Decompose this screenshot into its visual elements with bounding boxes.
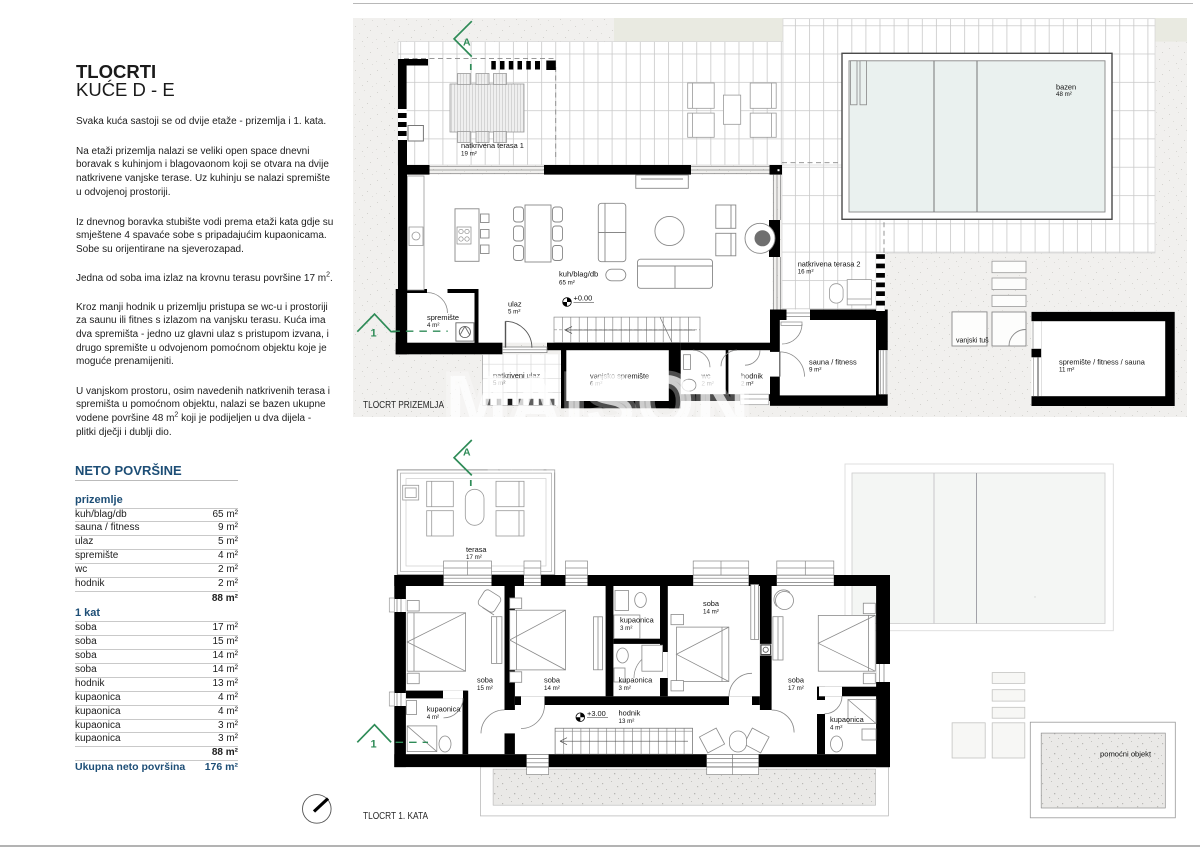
svg-text:A: A <box>463 37 471 49</box>
svg-text:19 m²: 19 m² <box>461 151 477 158</box>
svg-text:natkrivena terasa 2: natkrivena terasa 2 <box>798 260 861 269</box>
svg-text:4 m²: 4 m² <box>427 714 439 721</box>
svg-text:11 m²: 11 m² <box>1059 367 1074 374</box>
svg-text:A: A <box>463 447 471 459</box>
svg-text:1: 1 <box>371 738 377 750</box>
svg-text:hodnik: hodnik <box>619 709 641 718</box>
svg-text:4 m²: 4 m² <box>830 725 842 732</box>
svg-text:spremište: spremište <box>427 313 459 322</box>
svg-text:spremište / fitness / sauna: spremište / fitness / sauna <box>1059 358 1146 367</box>
svg-text:kupaonica: kupaonica <box>830 715 865 724</box>
svg-text:soba: soba <box>544 676 561 685</box>
svg-text:+0.00: +0.00 <box>574 294 593 303</box>
svg-text:14 m²: 14 m² <box>703 609 719 616</box>
svg-text:17 m²: 17 m² <box>466 554 482 561</box>
svg-text:5 m²: 5 m² <box>508 309 520 316</box>
svg-text:sauna / fitness: sauna / fitness <box>809 358 857 367</box>
svg-text:3 m²: 3 m² <box>619 685 631 692</box>
svg-text:terasa: terasa <box>466 545 487 554</box>
svg-text:13 m²: 13 m² <box>619 718 635 725</box>
svg-text:TLOCRT PRIZEMLJA: TLOCRT PRIZEMLJA <box>363 400 444 411</box>
svg-text:soba: soba <box>477 676 494 685</box>
svg-text:pomoćni objekt: pomoćni objekt <box>1100 750 1152 759</box>
svg-text:15 m²: 15 m² <box>477 685 493 692</box>
svg-text:kuh/blag/db: kuh/blag/db <box>559 270 598 279</box>
svg-text:TLOCRT 1. KATA: TLOCRT 1. KATA <box>363 811 428 822</box>
svg-text:REAL ESTATE: REAL ESTATE <box>490 447 723 475</box>
svg-text:MAISON: MAISON <box>446 360 751 443</box>
svg-text:4 m²: 4 m² <box>427 322 439 329</box>
svg-text:16 m²: 16 m² <box>798 269 814 276</box>
svg-text:+3.00: +3.00 <box>587 709 606 718</box>
svg-text:1: 1 <box>371 328 377 340</box>
svg-text:17 m²: 17 m² <box>788 685 804 692</box>
svg-text:14 m²: 14 m² <box>544 685 560 692</box>
svg-text:kupaonica: kupaonica <box>619 676 654 685</box>
svg-text:3 m²: 3 m² <box>620 625 632 632</box>
svg-text:soba: soba <box>788 676 805 685</box>
svg-text:65 m²: 65 m² <box>559 280 575 287</box>
svg-text:kupaonica: kupaonica <box>620 616 655 625</box>
svg-text:48 m²: 48 m² <box>1056 91 1072 98</box>
svg-text:vanjski tuš: vanjski tuš <box>956 338 989 345</box>
svg-text:soba: soba <box>703 599 720 608</box>
svg-text:natkrivena terasa 1: natkrivena terasa 1 <box>461 141 524 150</box>
svg-text:ulaz: ulaz <box>508 300 522 309</box>
svg-text:kupaonica: kupaonica <box>427 705 462 714</box>
svg-text:9 m²: 9 m² <box>809 367 821 374</box>
